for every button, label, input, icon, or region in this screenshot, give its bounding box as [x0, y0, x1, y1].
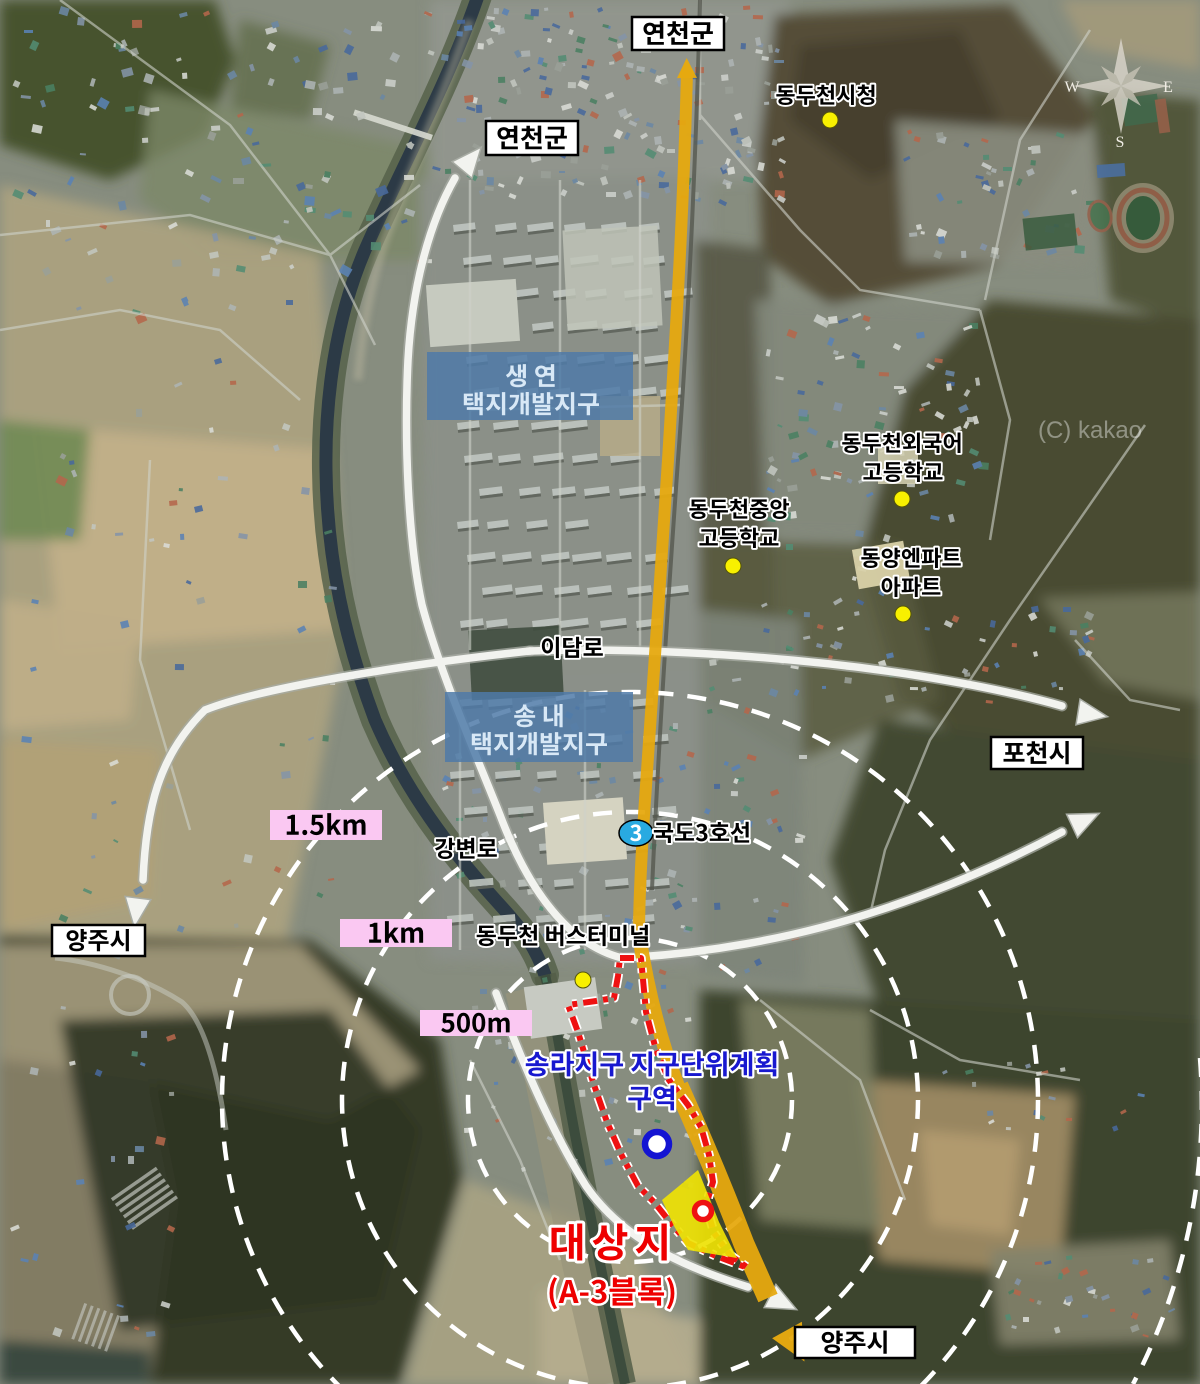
svg-text:W: W	[1064, 79, 1080, 96]
svg-text:E: E	[1163, 79, 1173, 96]
svg-text:(C) kakao: (C) kakao	[1038, 417, 1142, 444]
svg-text:S: S	[1116, 134, 1125, 151]
